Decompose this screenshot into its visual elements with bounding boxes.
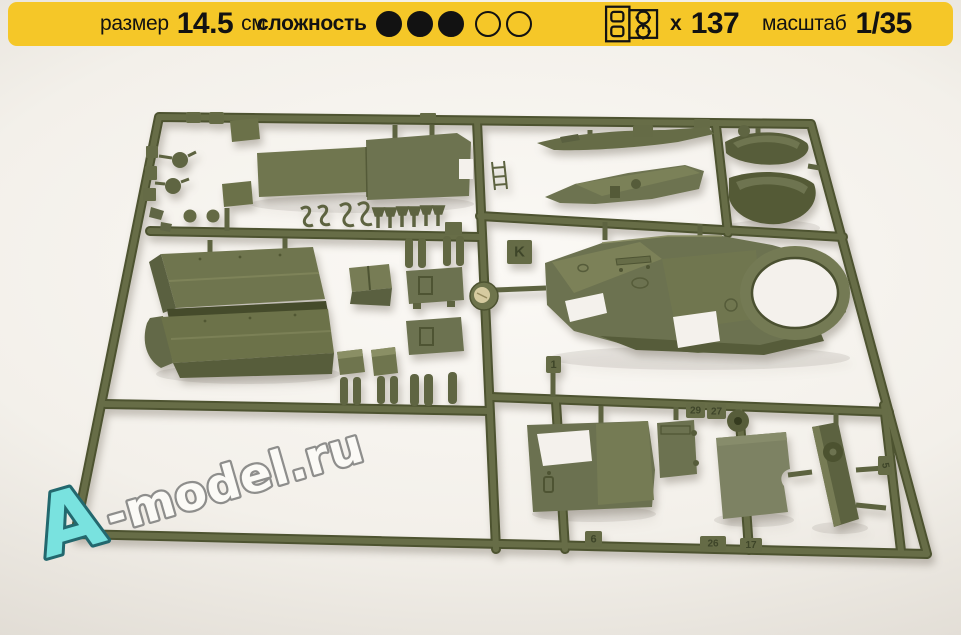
parts-count-prefix: x [670, 12, 682, 36]
difficulty-dots [376, 11, 532, 37]
sprue-label-1: 1 [550, 359, 556, 371]
difficulty-dot-2 [407, 11, 433, 37]
spec-bar: размер 14.5 см сложность x 137 масштаб 1… [8, 2, 953, 46]
product-card: K 1 29 27 6 26 17 5 A -model.ru размер [0, 0, 961, 635]
sprue-photo: K 1 29 27 6 26 17 5 [0, 0, 961, 635]
sprue-label-6: 6 [590, 534, 596, 546]
difficulty-dot-3 [438, 11, 464, 37]
scale-spec: масштаб 1/35 [762, 2, 912, 46]
size-spec: размер 14.5 см [100, 2, 265, 46]
sprue-icon [603, 5, 661, 43]
parts-hood [145, 247, 334, 378]
size-value: 14.5 [177, 7, 233, 41]
parts-cab [545, 236, 850, 355]
difficulty-dot-4 [475, 11, 501, 37]
difficulty-spec: сложность [257, 2, 532, 46]
difficulty-dot-5 [506, 11, 532, 37]
sprue-label-26: 26 [707, 539, 719, 550]
scale-label: масштаб [762, 12, 846, 36]
sprue-label-K: K [514, 244, 525, 261]
mold-logo-medallion [470, 282, 498, 310]
parts-top-left [149, 112, 473, 268]
size-label: размер [100, 12, 169, 36]
parts-count-value: 137 [691, 7, 740, 41]
parts-top-right [492, 125, 816, 224]
difficulty-label: сложность [257, 12, 367, 36]
small-ladder-part [492, 161, 507, 190]
scale-value: 1/35 [855, 7, 911, 41]
sprue-label-27: 27 [711, 407, 723, 418]
parts-mid-column [337, 264, 464, 406]
parts-bottom-right [527, 410, 859, 527]
sprue-label-17: 17 [745, 540, 757, 551]
parts-count-spec: x 137 [603, 2, 739, 46]
difficulty-dot-1 [376, 11, 402, 37]
sprue-label-29: 29 [690, 406, 702, 417]
